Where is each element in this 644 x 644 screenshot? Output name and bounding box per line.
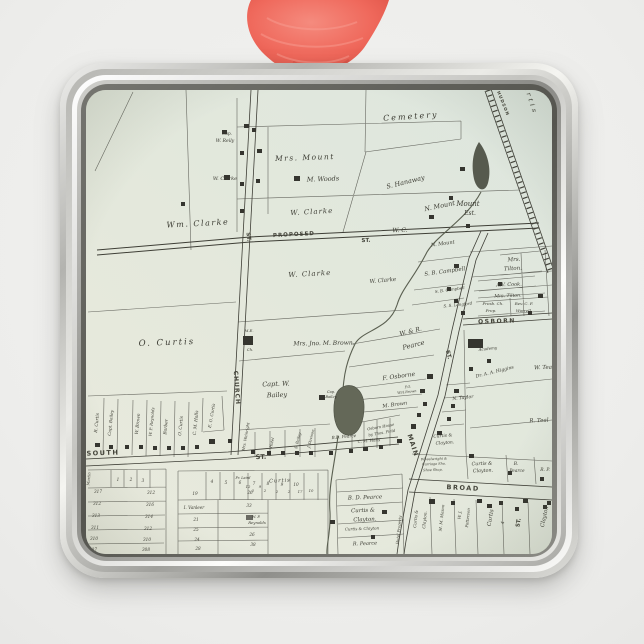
map-plate: PROPOSEDST.ST.CHURCHSOUTHST.MAINST.OSBOR… (86, 90, 552, 554)
product-photo: PROPOSEDST.ST.CHURCHSOUTHST.MAINST.OSBOR… (0, 0, 644, 644)
vignette (86, 90, 552, 554)
antique-map: PROPOSEDST.ST.CHURCHSOUTHST.MAINST.OSBOR… (86, 90, 552, 554)
